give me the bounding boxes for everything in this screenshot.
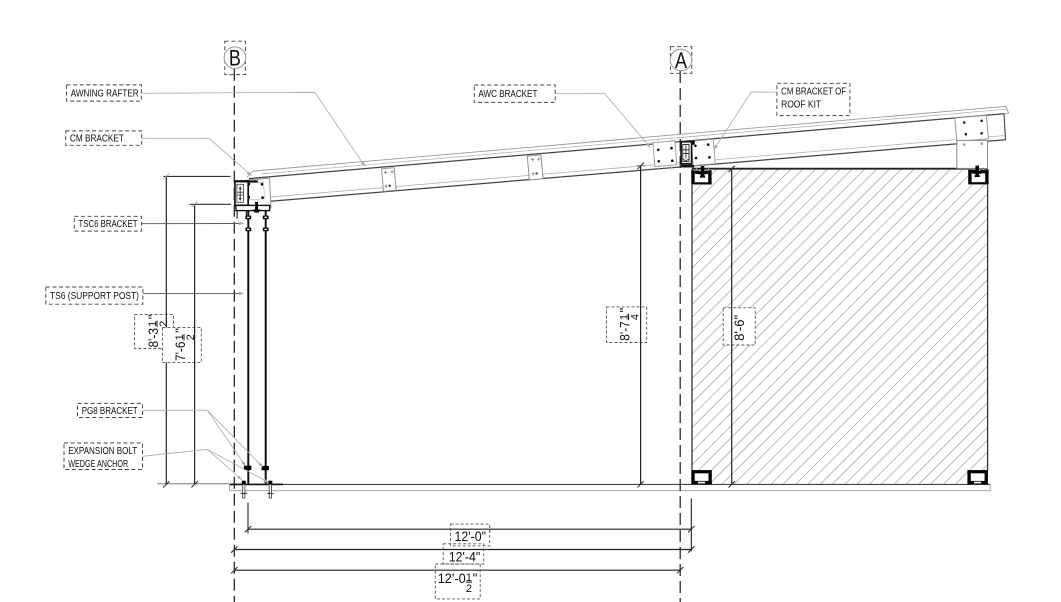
svg-text:AWNING RAFTER: AWNING RAFTER <box>71 88 139 99</box>
svg-text:8'-3: 8'-3 <box>146 328 161 348</box>
svg-text:4: 4 <box>630 314 642 320</box>
svg-text:12'-4": 12'-4" <box>449 549 481 564</box>
svg-text:2: 2 <box>158 321 170 327</box>
svg-text:ROOF KIT: ROOF KIT <box>781 100 821 111</box>
svg-text:12'-0: 12'-0 <box>438 571 466 586</box>
svg-text:": " <box>473 571 478 586</box>
svg-text:CM BRACKET: CM BRACKET <box>70 134 124 145</box>
svg-text:A: A <box>675 49 688 73</box>
svg-text:EXPANSION BOLT: EXPANSION BOLT <box>68 446 137 457</box>
svg-text:": " <box>618 308 633 313</box>
svg-text:2: 2 <box>185 334 197 340</box>
svg-text:2: 2 <box>466 583 472 595</box>
svg-text:TS6 (SUPPORT POST): TS6 (SUPPORT POST) <box>50 291 139 302</box>
svg-text:AWC BRACKET: AWC BRACKET <box>478 89 537 100</box>
svg-text:12'-0": 12'-0" <box>455 529 487 544</box>
svg-text:B: B <box>229 47 241 71</box>
svg-text:8'-7: 8'-7 <box>618 321 633 341</box>
svg-text:8'-6": 8'-6" <box>732 315 747 341</box>
svg-text:TSC6 BRACKET: TSC6 BRACKET <box>79 219 138 230</box>
svg-text:CM BRACKET OF: CM BRACKET OF <box>781 87 846 98</box>
svg-text:PG8 BRACKET: PG8 BRACKET <box>82 406 138 417</box>
svg-text:": " <box>173 328 188 333</box>
svg-text:7'-6: 7'-6 <box>173 342 188 362</box>
svg-text:": " <box>146 314 161 319</box>
svg-text:WEDGE ANCHOR: WEDGE ANCHOR <box>68 459 128 470</box>
